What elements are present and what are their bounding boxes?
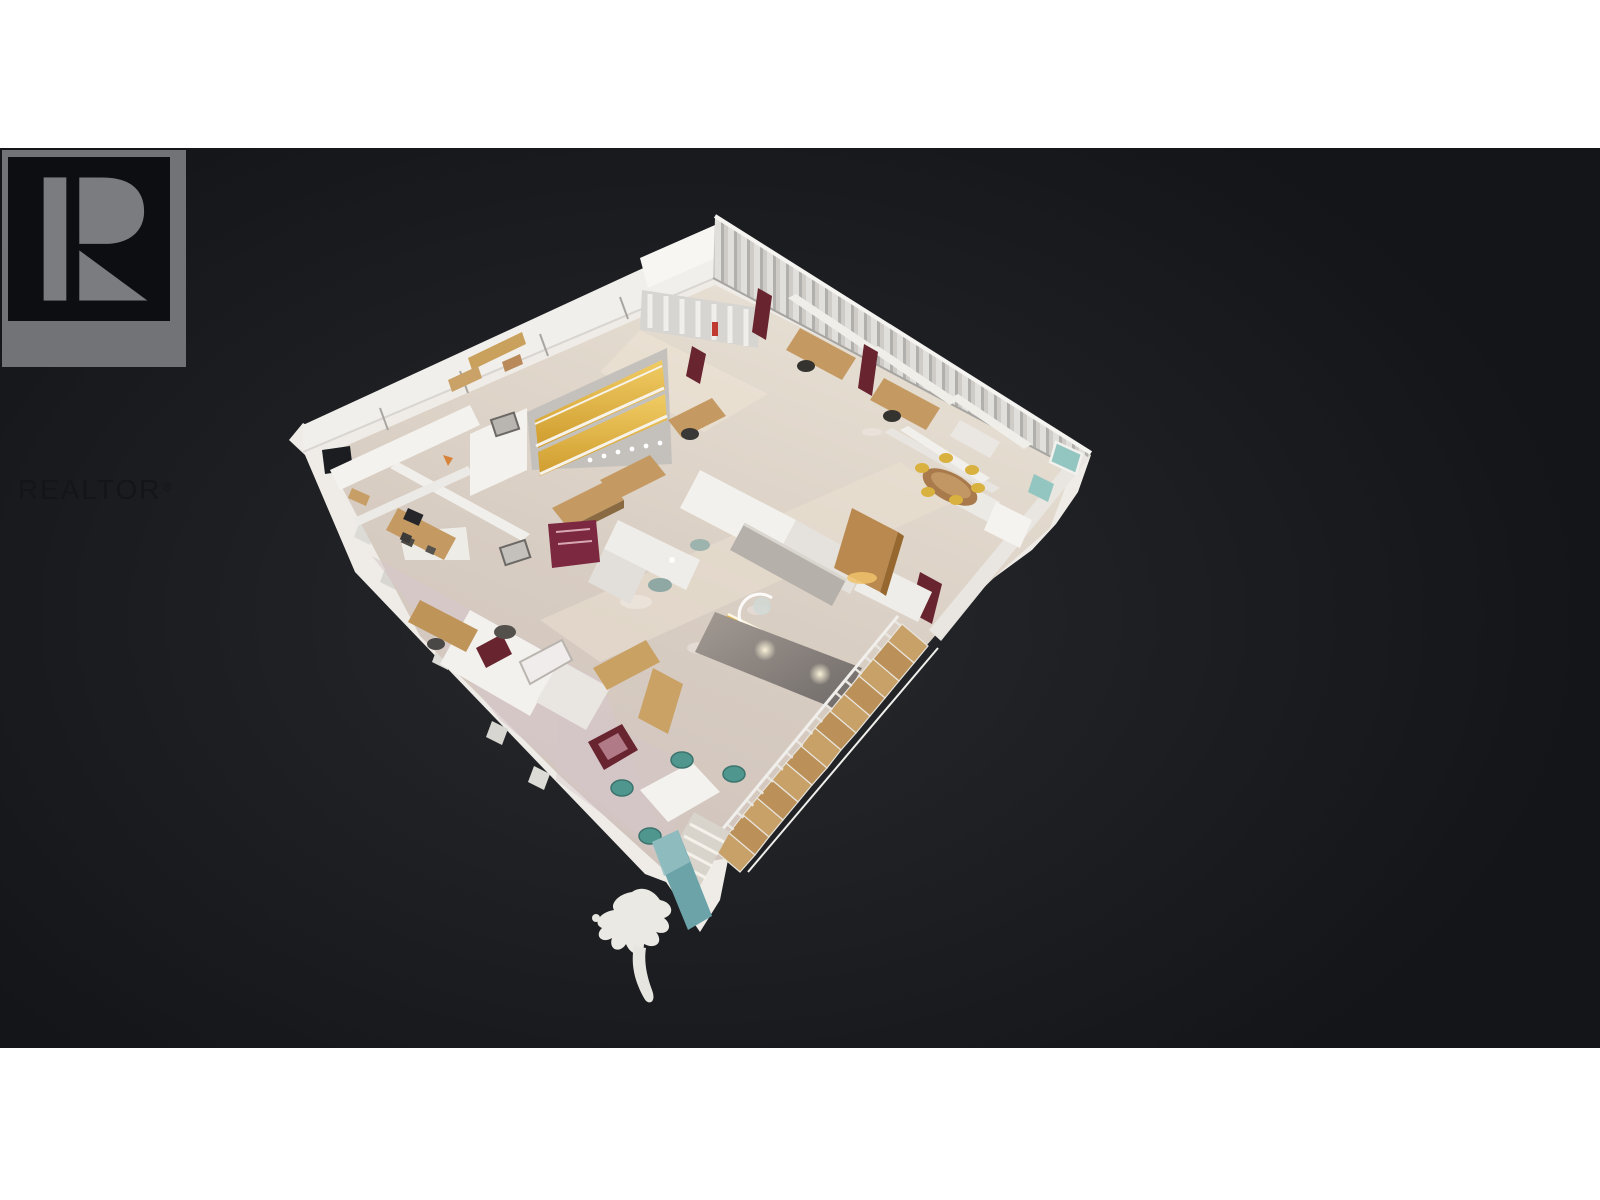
realtor-text: REALTOR [18, 475, 162, 505]
scan-artifact [592, 889, 671, 1003]
registered-mark: ® [163, 472, 173, 502]
fire-extinguisher [712, 322, 718, 336]
realtor-logo: REALTOR® [2, 150, 186, 367]
realtor-r-icon [8, 157, 170, 321]
page: { "logo": { "text": "REALTOR", "register… [0, 0, 1600, 1200]
dollhouse-model [0, 148, 1600, 1048]
realtor-wordmark: REALTOR® [6, 475, 184, 511]
